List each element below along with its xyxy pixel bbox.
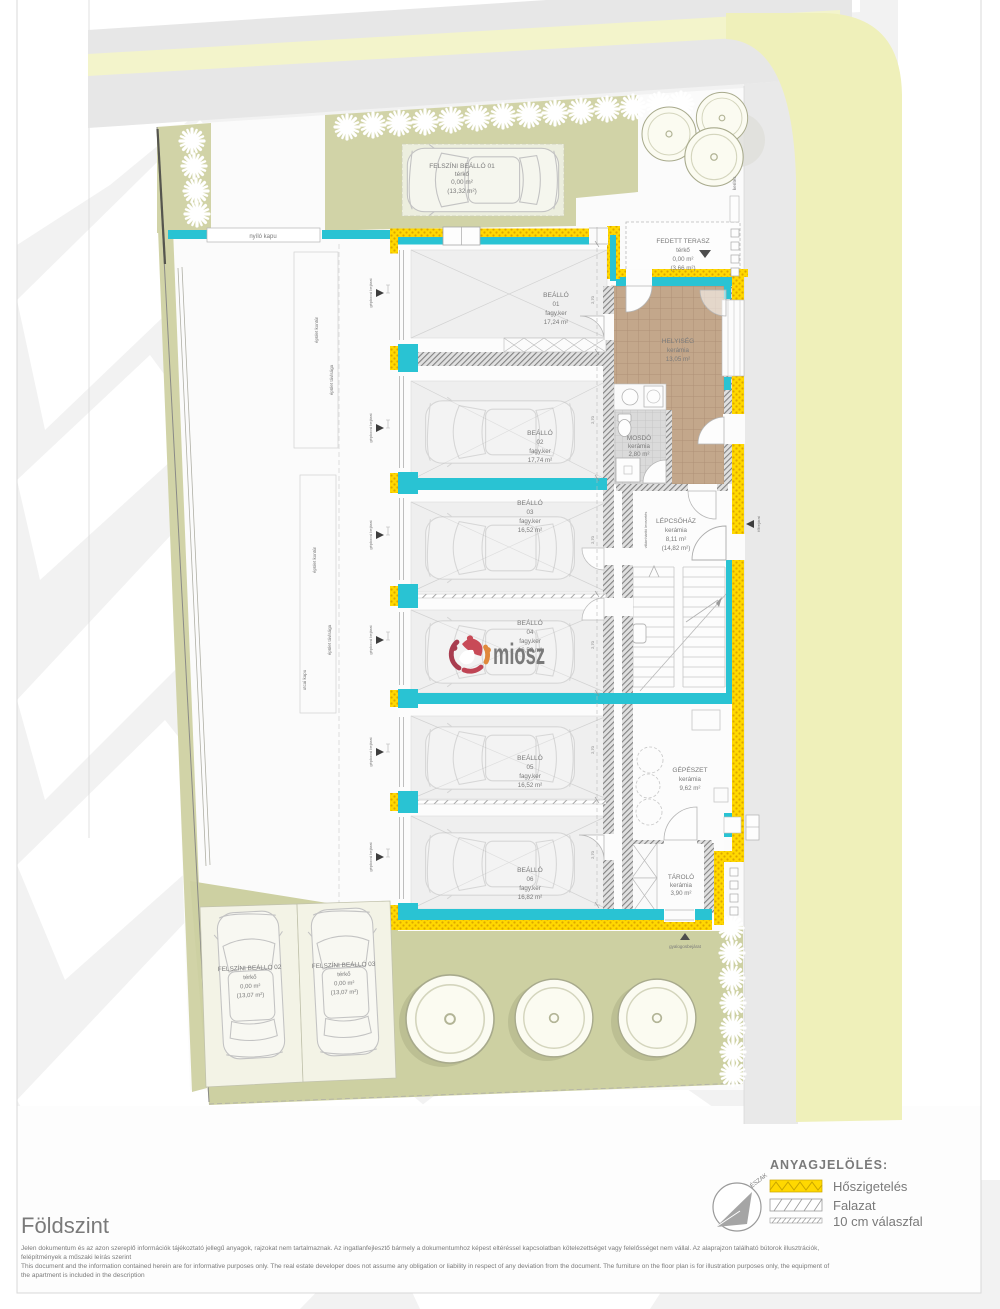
svg-text:gépkocsi bejárat: gépkocsi bejárat xyxy=(368,413,373,443)
svg-text:épület távlsága: épület távlsága xyxy=(327,624,332,655)
svg-text:BEÁLLÓ: BEÁLLÓ xyxy=(517,618,543,627)
svg-text:Hőszigetelés: Hőszigetelés xyxy=(833,1179,908,1194)
svg-text:BEÁLLÓ: BEÁLLÓ xyxy=(527,428,553,437)
svg-text:(13,07 m²): (13,07 m²) xyxy=(331,990,359,997)
svg-text:gépkocsi bejárat: gépkocsi bejárat xyxy=(368,737,373,767)
svg-text:16,52 m²: 16,52 m² xyxy=(518,782,542,789)
svg-text:the apartment is included in t: the apartment is included in the descrip… xyxy=(21,1272,145,1279)
svg-text:épület kontúr: épület kontúr xyxy=(314,316,319,343)
svg-text:főbejárat: főbejárat xyxy=(756,515,761,531)
svg-text:17,24 m²: 17,24 m² xyxy=(544,319,568,326)
svg-text:MOSDÓ: MOSDÓ xyxy=(627,433,651,442)
svg-text:fagy.ker: fagy.ker xyxy=(519,518,541,525)
svg-text:0,00 m²: 0,00 m² xyxy=(673,256,694,263)
svg-text:kerítés: kerítés xyxy=(732,176,737,190)
svg-text:02: 02 xyxy=(537,439,544,446)
svg-text:(14,82 m²): (14,82 m²) xyxy=(662,545,691,552)
svg-text:kerámia: kerámia xyxy=(679,776,702,783)
svg-text:04: 04 xyxy=(527,629,534,636)
svg-text:0,00 m²: 0,00 m² xyxy=(240,984,261,991)
svg-text:GÉPÉSZET: GÉPÉSZET xyxy=(672,765,707,774)
svg-text:2,70: 2,70 xyxy=(590,745,595,754)
svg-text:nyíló kapu: nyíló kapu xyxy=(249,234,276,240)
svg-text:FELSZÍNI BEÁLLÓ 01: FELSZÍNI BEÁLLÓ 01 xyxy=(429,161,495,170)
svg-text:16,82 m²: 16,82 m² xyxy=(518,894,542,901)
svg-text:ANYAGJELÖLÉS:: ANYAGJELÖLÉS: xyxy=(770,1157,888,1172)
svg-text:gépkocsi bejárat: gépkocsi bejárat xyxy=(368,278,373,308)
svg-text:miosz: miosz xyxy=(493,638,545,671)
svg-text:kerámia: kerámia xyxy=(670,882,693,889)
svg-text:2,70: 2,70 xyxy=(590,640,595,649)
svg-text:FEDETT TERASZ: FEDETT TERASZ xyxy=(656,238,709,245)
svg-text:HELYISÉG: HELYISÉG xyxy=(662,336,695,345)
svg-text:16,52 m²: 16,52 m² xyxy=(518,527,542,534)
svg-text:0,00 m²: 0,00 m² xyxy=(334,981,355,988)
svg-text:LÉPCSŐHÁZ: LÉPCSŐHÁZ xyxy=(656,516,696,525)
svg-text:Falazat: Falazat xyxy=(833,1198,876,1213)
svg-text:2,80 m²: 2,80 m² xyxy=(629,451,650,458)
svg-text:(13,07 m²): (13,07 m²) xyxy=(237,993,265,1000)
svg-text:0,00 m²: 0,00 m² xyxy=(451,179,473,186)
svg-text:TÁROLÓ: TÁROLÓ xyxy=(668,872,694,881)
svg-text:kerámia: kerámia xyxy=(628,443,651,450)
svg-text:villámhárító levezetés: villámhárító levezetés xyxy=(644,512,648,549)
svg-text:2,70: 2,70 xyxy=(590,850,595,859)
svg-text:térkő: térkő xyxy=(676,247,690,254)
svg-text:01: 01 xyxy=(553,301,560,308)
svg-text:06: 06 xyxy=(527,876,534,883)
svg-text:03: 03 xyxy=(527,509,534,516)
svg-text:fagy.ker: fagy.ker xyxy=(519,773,541,780)
svg-text:térkő: térkő xyxy=(455,171,470,178)
svg-text:kerámia: kerámia xyxy=(665,527,688,534)
svg-text:3,90 m²: 3,90 m² xyxy=(671,890,692,897)
svg-text:épület kontúr: épület kontúr xyxy=(312,546,317,573)
svg-text:BEÁLLÓ: BEÁLLÓ xyxy=(517,753,543,762)
svg-text:gépkocsi bejárat: gépkocsi bejárat xyxy=(368,625,373,655)
svg-text:13,05 m²: 13,05 m² xyxy=(666,356,690,363)
svg-text:térkő: térkő xyxy=(243,975,257,981)
svg-text:9,62 m²: 9,62 m² xyxy=(680,785,701,792)
svg-text:2,70: 2,70 xyxy=(590,535,595,544)
svg-text:utcai kapu: utcai kapu xyxy=(302,669,307,690)
svg-text:gépkocsi bejárat: gépkocsi bejárat xyxy=(368,842,373,872)
svg-text:gyalogosbejárat: gyalogosbejárat xyxy=(669,944,702,949)
svg-text:8,11 m²: 8,11 m² xyxy=(666,536,687,543)
svg-text:BEÁLLÓ: BEÁLLÓ xyxy=(517,498,543,507)
svg-text:gépkocsi bejárat: gépkocsi bejárat xyxy=(368,520,373,550)
svg-text:05: 05 xyxy=(527,764,534,771)
svg-text:10 cm válaszfal: 10 cm válaszfal xyxy=(833,1214,923,1229)
svg-text:Jelen dokumentum és az azon sz: Jelen dokumentum és az azon szereplő inf… xyxy=(21,1245,819,1252)
svg-text:BEÁLLÓ: BEÁLLÓ xyxy=(517,865,543,874)
svg-text:térkő: térkő xyxy=(337,972,351,978)
svg-text:(3,66 m²): (3,66 m²) xyxy=(670,265,695,272)
svg-text:fagy.ker: fagy.ker xyxy=(519,885,541,892)
svg-text:2,70: 2,70 xyxy=(590,415,595,424)
svg-text:(13,32 m²): (13,32 m²) xyxy=(447,188,476,195)
svg-text:Földszint: Földszint xyxy=(21,1213,109,1238)
svg-text:BEÁLLÓ: BEÁLLÓ xyxy=(543,290,569,299)
svg-text:fagy.ker: fagy.ker xyxy=(529,448,551,455)
svg-text:épület távlsága: épület távlsága xyxy=(329,364,334,395)
svg-text:fagy.ker: fagy.ker xyxy=(545,310,567,317)
svg-text:17,74 m²: 17,74 m² xyxy=(528,457,552,464)
svg-text:2,70: 2,70 xyxy=(590,295,595,304)
svg-text:kerámia: kerámia xyxy=(667,347,690,354)
svg-text:felépítmények a műszaki leírás: felépítmények a műszaki leírás szerint xyxy=(21,1254,131,1261)
svg-text:This document and the informat: This document and the information contai… xyxy=(21,1263,829,1270)
